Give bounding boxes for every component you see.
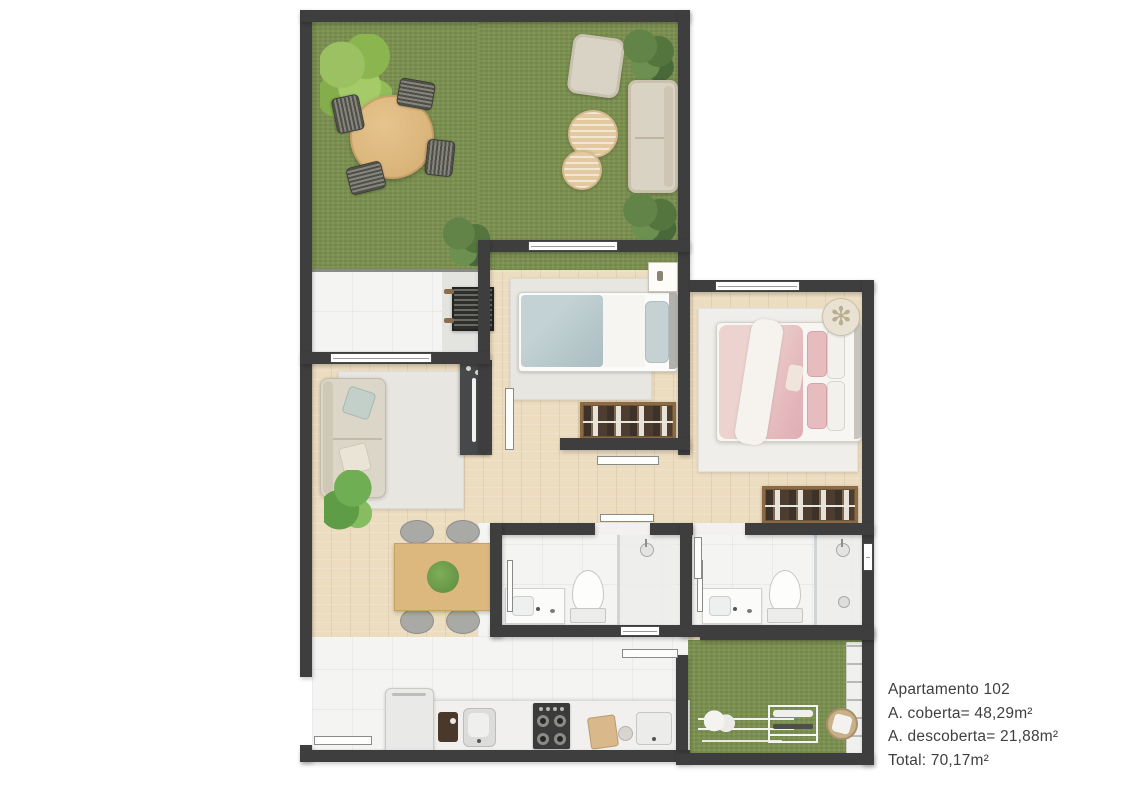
garden-basket [826, 708, 858, 740]
laundry-tank [636, 712, 672, 745]
double-bed [716, 322, 862, 442]
kitchen-sink [463, 708, 496, 747]
double-bed-pillow-pink-2 [807, 383, 827, 429]
dining-chair-bottom-left [400, 608, 434, 634]
bathroom2-toilet-tank [767, 608, 803, 623]
stove-knob-2 [546, 707, 550, 711]
dining-chair-top-left [400, 520, 434, 544]
laundry-tank-faucet [652, 737, 656, 741]
bathroom1-shower-stem [645, 539, 647, 547]
bathroom1-basin [512, 596, 534, 616]
dining-table [394, 543, 492, 611]
wall-garden-bottom [676, 753, 874, 765]
wall-garden-top [700, 628, 874, 640]
living-plant [324, 470, 372, 534]
terrace-bush-bottom [620, 194, 678, 240]
cutting-board-wood [587, 714, 619, 750]
bedroom1-window [528, 241, 618, 251]
bathroom1-toilet-tank [570, 608, 606, 623]
double-bed-headboard [854, 323, 862, 439]
stove-burner-1 [537, 715, 549, 727]
double-bed-pillow-white-1 [827, 329, 845, 379]
terrace-chair-east [424, 139, 456, 178]
terrace-chair-north [396, 77, 436, 111]
bedroom1-door-leaf [505, 388, 514, 450]
bathroom1-window [620, 626, 660, 636]
bathroom2-vanity [702, 588, 762, 624]
wall-kitchen-bottom [300, 750, 690, 762]
tv-screen [472, 378, 476, 442]
stove [533, 703, 570, 749]
bathroom2-window [863, 543, 873, 571]
bathroom2-basin [709, 596, 731, 616]
stove-burner-2 [554, 715, 566, 727]
tv-decor-dot-1 [466, 366, 471, 371]
dining-chair-top-right [446, 520, 480, 544]
bathroom2-hand-shower [838, 596, 850, 608]
apartment-title: Apartamento 102 [888, 678, 1118, 702]
stove-knob-3 [553, 707, 557, 711]
bathroom-1-doorway [595, 523, 650, 535]
bathroom2-shower-stem [841, 539, 843, 547]
wall-bedroom1-left [478, 240, 490, 452]
double-bed-pillow-white-2 [827, 381, 845, 431]
bedroom2-window [715, 281, 800, 291]
cutting-board-knob [450, 718, 456, 724]
sofa-back [664, 86, 673, 187]
single-bed-sheet [603, 295, 645, 367]
bathroom2-faucet [733, 607, 737, 611]
bathroom1-door-leaf [600, 514, 654, 522]
bedroom2-door-leaf [597, 456, 659, 465]
wall-bathroom-divider [680, 523, 692, 637]
bedroom2-wardrobe [762, 486, 858, 524]
floor-plan-canvas: ✻ [0, 0, 1125, 788]
bathroom2-soap [747, 609, 752, 613]
cutting-board-dark [438, 712, 458, 742]
stove-burner-3 [537, 733, 549, 745]
single-bed [518, 292, 678, 372]
garden-shelf-item-dark [773, 724, 813, 729]
sofa-pillow-blue [341, 385, 376, 420]
garden-basket-towel [831, 713, 853, 735]
uncovered-area: A. descoberta= 21,88m² [888, 725, 1118, 749]
kitchen-bowl [618, 726, 633, 741]
garden-shelf-item-white [773, 710, 813, 717]
wall-bathrooms-top-a [490, 523, 595, 535]
wall-top [300, 10, 690, 22]
wall-bathroom1-left [490, 523, 502, 637]
bedroom2-decor-table: ✻ [822, 298, 860, 336]
dining-chair-bottom-right [446, 608, 480, 634]
wall-kitchen-garden [676, 655, 688, 750]
living-sofa-seam [333, 438, 382, 440]
terrace-bush-top [622, 28, 674, 80]
bathroom1-soap [550, 609, 555, 613]
info-panel: Apartamento 102 A. coberta= 48,29m² A. d… [888, 678, 1118, 772]
bathroom2-shower-head [836, 543, 850, 557]
terrace-sofa [628, 80, 678, 193]
wicker-table-small [562, 150, 602, 190]
total-area: Total: 70,17m² [888, 749, 1118, 773]
single-bed-pillow [645, 301, 669, 363]
covered-area: A. coberta= 48,29m² [888, 702, 1118, 726]
stove-knob-4 [560, 707, 564, 711]
bathroom1-faucet [536, 607, 540, 611]
single-bed-duvet [521, 295, 603, 367]
wall-terrace-right [678, 10, 690, 455]
wall-bedroom1-bottom [560, 438, 690, 450]
stove-knob-1 [539, 707, 543, 711]
grill-handle-bottom [444, 318, 454, 323]
single-bed-headboard [669, 293, 678, 369]
wall-bathrooms-top-c [745, 523, 874, 535]
bathroom1-vanity [505, 588, 565, 624]
exterior-mask [690, 236, 880, 282]
stove-burner-4 [554, 733, 566, 745]
kitchen-sink-faucet [477, 739, 481, 743]
garden-shelf [768, 705, 818, 743]
fridge [385, 688, 434, 752]
fridge-handle [392, 693, 426, 696]
clothesline-garment [704, 710, 738, 734]
bathroom1-shower-head [640, 543, 654, 557]
bedroom1-wardrobe [580, 402, 676, 440]
patio-sliding-door [330, 353, 432, 363]
terrace-armchair [566, 33, 626, 100]
bathroom1-towel-rail [507, 560, 513, 612]
garden-door-leaf [622, 649, 678, 658]
table-centerpiece-plant [427, 561, 459, 593]
kitchen-sink-basin [468, 713, 489, 737]
grill-handle-top [444, 289, 454, 294]
entrance-door-leaf [314, 736, 372, 745]
nightstand [648, 262, 678, 292]
wall-left [300, 10, 312, 677]
bathroom-2-doorway [693, 523, 745, 535]
double-bed-pillow-pink-1 [807, 331, 827, 377]
bathroom2-door-leaf [694, 537, 702, 579]
nightstand-decor [657, 271, 663, 281]
garden-shelf-line [770, 734, 816, 736]
